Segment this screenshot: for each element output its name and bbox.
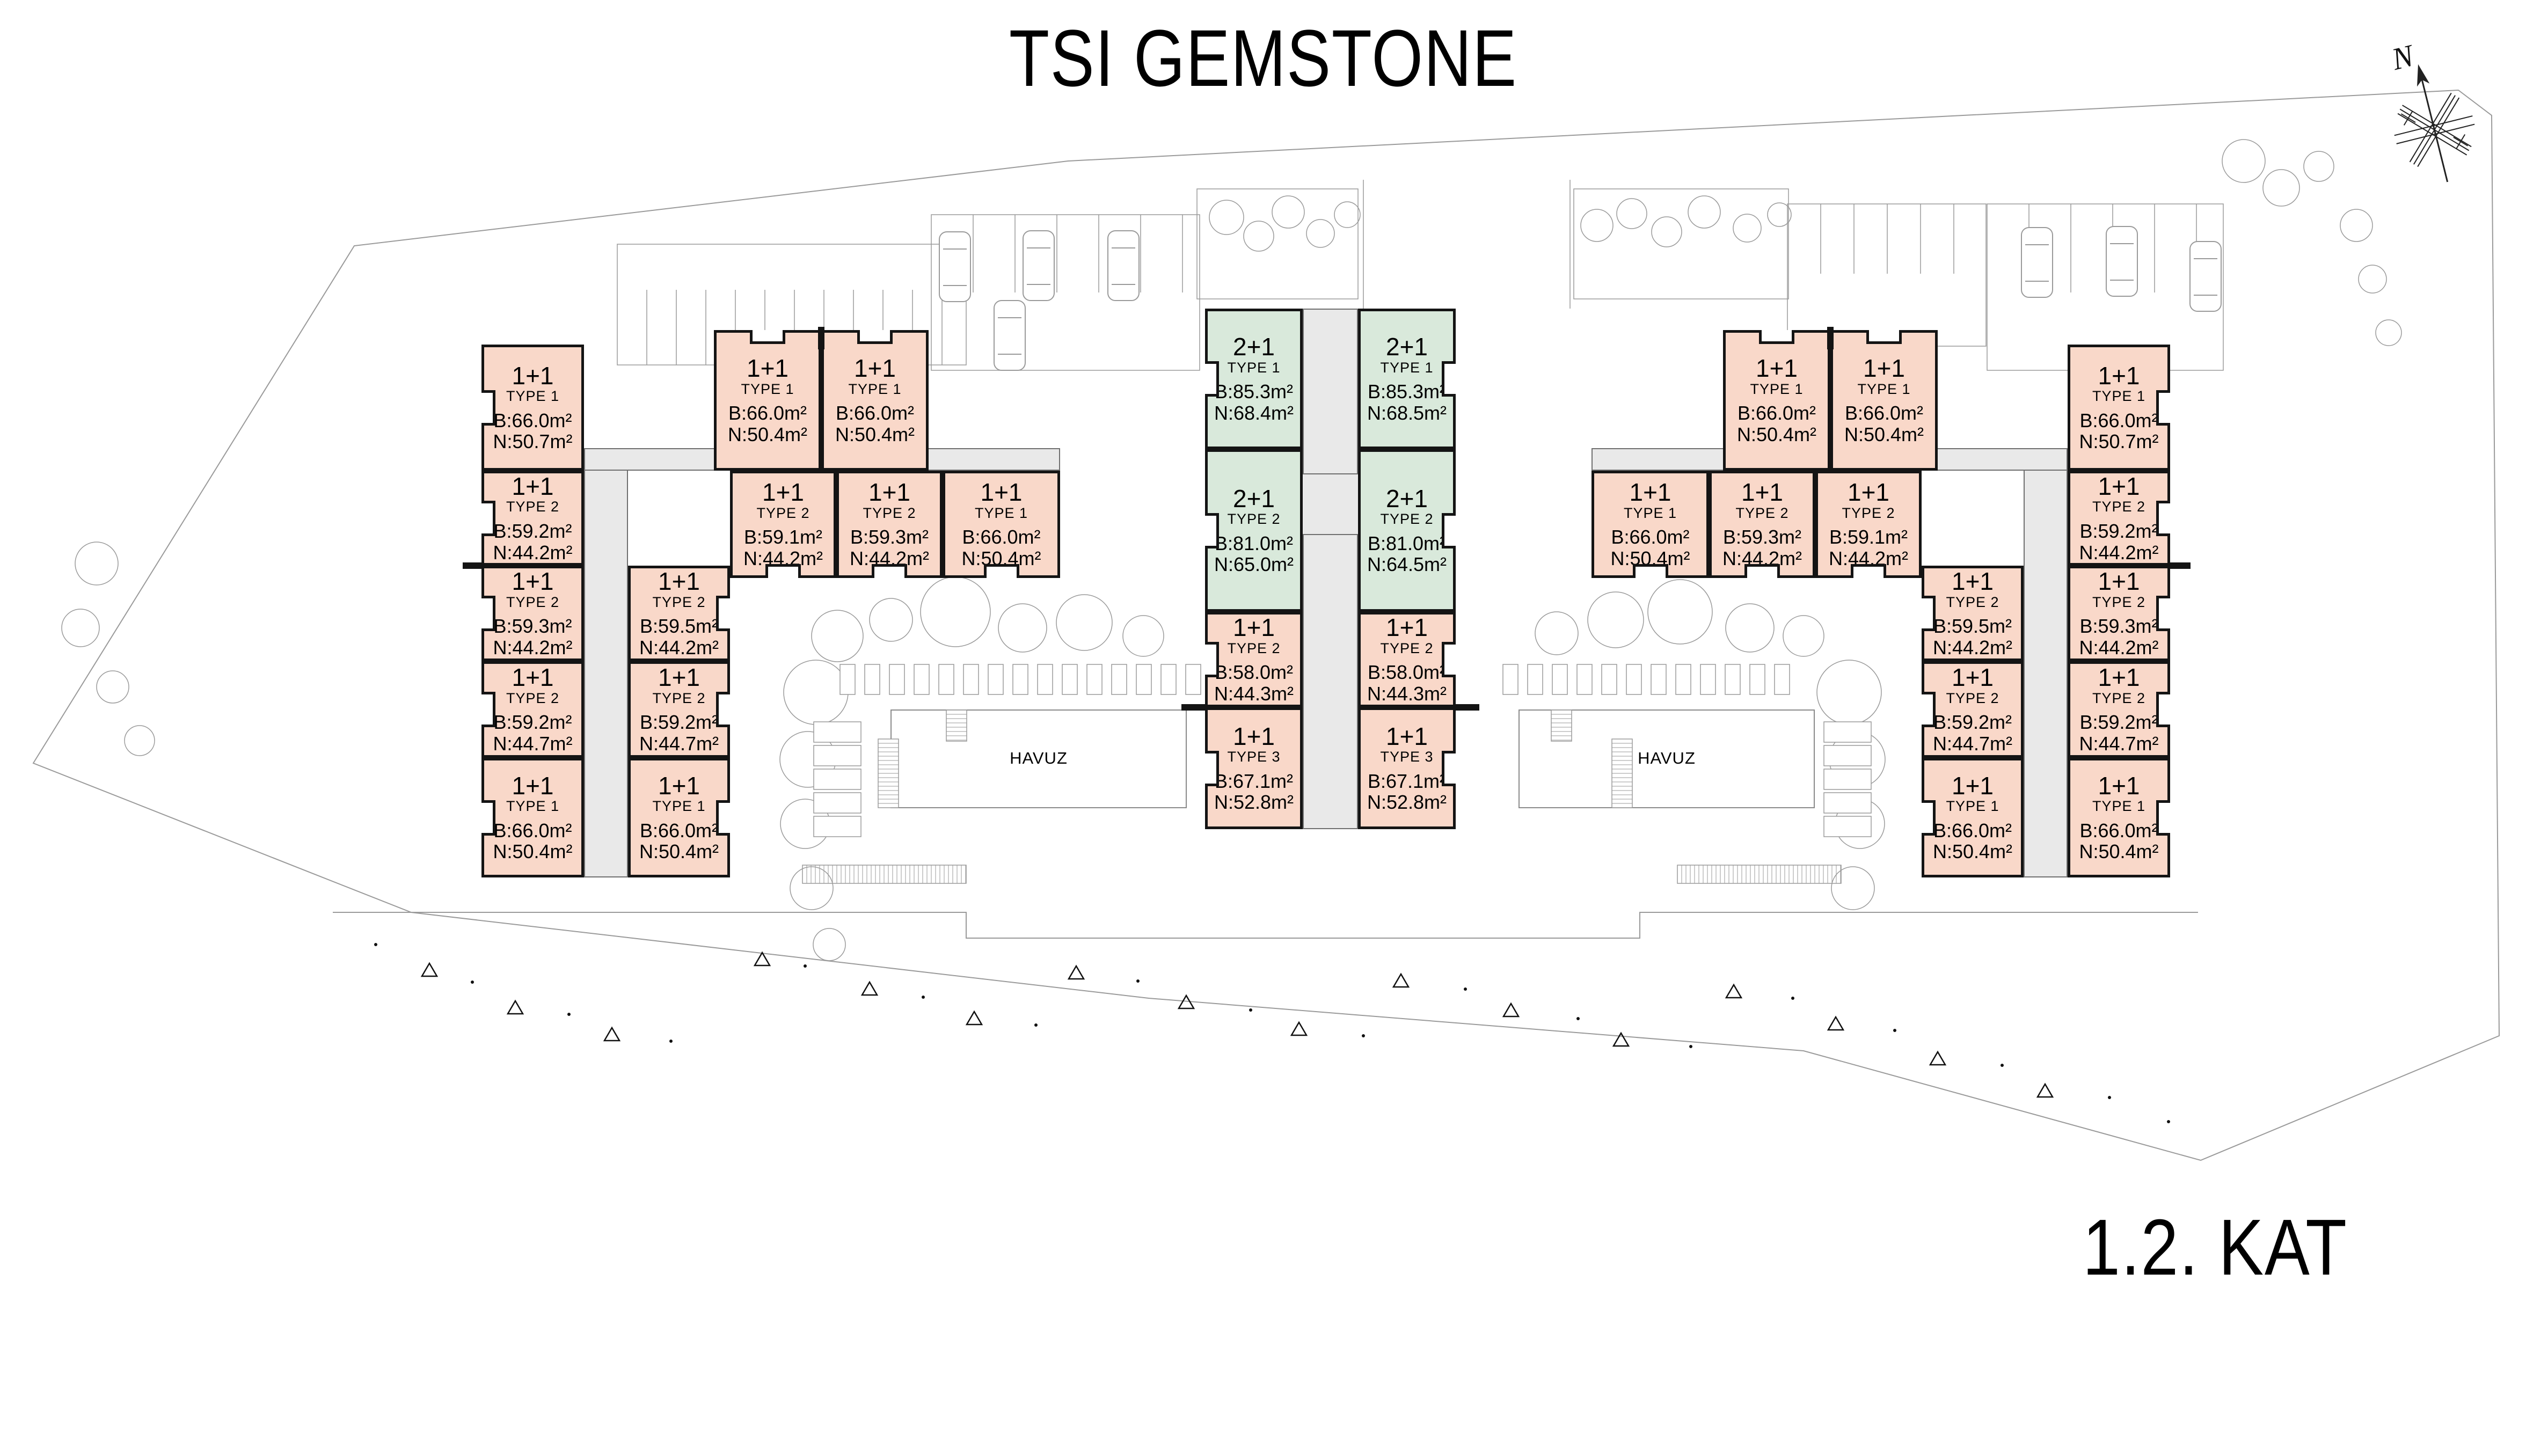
ground-dot (1136, 979, 1140, 983)
unit-plan-type: TYPE 1 (1857, 382, 1910, 398)
unit-net-area: N:44.7m² (493, 733, 572, 755)
apartment-unit[interactable]: 1+1TYPE 1B:66.0m²N:50.4m² (714, 330, 821, 471)
wall-stub (1181, 704, 1206, 711)
tree-icon (1209, 200, 1244, 235)
apartment-unit[interactable]: 1+1TYPE 2B:59.3m²N:44.2m² (481, 566, 584, 661)
unit-type-label: 1+1 (747, 355, 789, 381)
unit-net-area: N:44.3m² (1214, 683, 1294, 705)
tree-icon (1588, 592, 1644, 648)
unit-brut-area: B:59.2m² (2079, 521, 2158, 542)
unit-notch (1442, 751, 1456, 786)
unit-notch (1442, 361, 1456, 397)
pergola-bench (1677, 865, 1841, 883)
unit-brut-area: B:66.0m² (493, 820, 572, 842)
wall-stub (2170, 562, 2191, 569)
walkway-path (333, 912, 2198, 938)
apartment-unit[interactable]: 1+1TYPE 2B:59.2m²N:44.2m² (481, 471, 584, 566)
ground-dot (1034, 1023, 1038, 1027)
unit-type-label: 2+1 (1386, 486, 1428, 511)
unit-plan-type: TYPE 2 (1227, 641, 1280, 657)
unit-plan-type: TYPE 2 (1842, 506, 1895, 522)
car-icon (1023, 231, 1054, 301)
tree-icon (2222, 140, 2265, 182)
unit-type-label: 2+1 (1386, 334, 1428, 360)
apartment-unit[interactable]: 1+1TYPE 1B:66.0m²N:50.4m² (1830, 330, 1938, 471)
unit-brut-area: B:66.0m² (1845, 403, 1923, 424)
apartment-unit[interactable]: 1+1TYPE 2B:59.1m²N:44.2m² (1815, 471, 1922, 578)
unit-type-label: 1+1 (512, 473, 553, 499)
unit-type-label: 1+1 (1863, 355, 1905, 381)
unit-plan-type: TYPE 1 (1946, 799, 1999, 815)
pool-label: HAVUZ (1638, 749, 1696, 768)
unit-brut-area: B:85.3m² (1215, 381, 1293, 403)
plant-mark (1393, 974, 1408, 987)
unit-plan-type: TYPE 2 (2092, 691, 2145, 707)
car-icon (2106, 226, 2137, 296)
unit-brut-area: B:67.1m² (1215, 771, 1293, 792)
apartment-unit[interactable]: 1+1TYPE 1B:66.0m²N:50.4m² (821, 330, 929, 471)
unit-type-label: 2+1 (1233, 334, 1275, 360)
unit-notch (716, 596, 730, 631)
unit-plan-type: TYPE 2 (1227, 511, 1280, 528)
plant-mark (1828, 1017, 1843, 1030)
tree-icon (1581, 209, 1613, 242)
ground-dot (922, 996, 925, 999)
apartment-unit[interactable]: 1+1TYPE 2B:59.3m²N:44.2m² (2068, 566, 2170, 661)
unit-type-label: 1+1 (2098, 568, 2140, 594)
apartment-unit[interactable]: 1+1TYPE 1B:66.0m²N:50.7m² (2068, 345, 2170, 471)
unit-notch (1744, 564, 1780, 578)
unit-net-area: N:44.7m² (639, 733, 719, 755)
ground-dot (1576, 1017, 1580, 1020)
lounge-chair-icon (1824, 793, 1871, 813)
tree-icon (62, 609, 99, 647)
unit-net-area: N:64.5m² (1367, 554, 1447, 575)
corridor (1303, 309, 1358, 829)
sunbed-icon (939, 664, 954, 694)
apartment-unit[interactable]: 1+1TYPE 2B:59.2m²N:44.7m² (628, 661, 730, 758)
plant-mark (1726, 985, 1741, 998)
lounge-chair-icon (814, 793, 861, 813)
plant-mark (1069, 966, 1084, 979)
unit-notch (1205, 642, 1219, 677)
unit-plan-type: TYPE 1 (506, 389, 559, 405)
apartment-unit[interactable]: 2+1TYPE 1B:85.3m²N:68.5m² (1358, 309, 1456, 449)
unit-type-label: 1+1 (658, 568, 700, 594)
ground-dot (804, 964, 807, 968)
unit-type-label: 1+1 (1848, 479, 1889, 505)
unit-net-area: N:52.8m² (1367, 792, 1447, 813)
tree-icon (75, 542, 118, 585)
sunbed-icon (1602, 664, 1617, 694)
tree-icon (97, 671, 129, 703)
tree-icon (1648, 580, 1712, 644)
plant-mark (1291, 1022, 1306, 1035)
unit-brut-area: B:59.5m² (1933, 616, 2012, 637)
unit-net-area: N:50.4m² (835, 424, 915, 445)
apartment-unit[interactable]: 1+1TYPE 2B:59.2m²N:44.7m² (481, 661, 584, 758)
unit-plan-type: TYPE 2 (1946, 595, 1999, 611)
tree-icon (1831, 867, 1874, 910)
plant-mark (1614, 1033, 1629, 1046)
tree-icon (1306, 220, 1334, 247)
unit-brut-area: B:59.2m² (2079, 712, 2158, 733)
unit-plan-type: TYPE 1 (1380, 360, 1433, 376)
apartment-unit[interactable]: 1+1TYPE 1B:66.0m²N:50.4m² (1723, 330, 1830, 471)
unit-net-area: N:50.4m² (728, 424, 807, 445)
apartment-unit[interactable]: 1+1TYPE 2B:59.1m²N:44.2m² (730, 471, 836, 578)
apartment-unit[interactable]: 2+1TYPE 1B:85.3m²N:68.4m² (1205, 309, 1303, 449)
tree-icon (1244, 221, 1274, 251)
unit-brut-area: B:59.3m² (2079, 616, 2158, 637)
sunbed-icon (1528, 664, 1543, 694)
wall-stub (1827, 327, 1834, 349)
ground-dot (471, 981, 474, 984)
unit-net-area: N:44.3m² (1367, 683, 1447, 705)
apartment-unit[interactable]: 1+1TYPE 1B:66.0m²N:50.4m² (1591, 471, 1709, 578)
unit-brut-area: B:66.0m² (2079, 410, 2158, 431)
tree-icon (1817, 660, 1881, 725)
unit-notch (1633, 564, 1668, 578)
tree-icon (1617, 199, 1647, 229)
unit-brut-area: B:66.0m² (1933, 820, 2012, 842)
apartment-unit[interactable]: 1+1TYPE 3B:67.1m²N:52.8m² (1205, 707, 1303, 829)
sunbed-icon (988, 664, 1003, 694)
lounge-chair-icon (1824, 722, 1871, 742)
plant-mark (862, 982, 877, 995)
unit-type-label: 1+1 (512, 773, 553, 799)
sunbed-icon (889, 664, 904, 694)
unit-notch (1205, 751, 1219, 786)
lounge-chair-icon (1824, 769, 1871, 789)
unit-net-area: N:44.2m² (2079, 637, 2158, 659)
unit-notch (481, 501, 495, 536)
pergola-bench (802, 865, 966, 883)
apartment-unit[interactable]: 2+1TYPE 2B:81.0m²N:65.0m² (1205, 449, 1303, 612)
unit-net-area: N:44.2m² (2079, 542, 2158, 564)
unit-net-area: N:50.4m² (493, 841, 572, 862)
unit-notch (1442, 513, 1456, 548)
wall-stub (818, 327, 824, 349)
tree-icon (812, 610, 863, 662)
tree-icon (790, 867, 833, 910)
unit-brut-area: B:59.2m² (1933, 712, 2012, 733)
unit-plan-type: TYPE 2 (1380, 641, 1433, 657)
apartment-unit[interactable]: 1+1TYPE 2B:59.3m²N:44.2m² (1709, 471, 1815, 578)
plant-mark (755, 953, 770, 965)
unit-notch (750, 330, 785, 344)
tree-icon (1334, 202, 1360, 228)
unit-type-label: 1+1 (868, 479, 910, 505)
unit-plan-type: TYPE 1 (975, 506, 1028, 522)
unit-net-area: N:44.2m² (1933, 637, 2012, 659)
unit-net-area: N:68.5m² (1367, 403, 1447, 424)
unit-type-label: 1+1 (658, 664, 700, 690)
unit-brut-area: B:59.3m² (1723, 526, 1801, 548)
unit-type-label: 1+1 (512, 664, 553, 690)
floor-plan-canvas: TSI GEMSTONE 1.2. KAT N HAVUZHAVUZ1+1TYP… (0, 0, 2526, 1456)
unit-type-label: 1+1 (1233, 723, 1275, 749)
tree-icon (870, 598, 912, 641)
plant-mark (1930, 1052, 1945, 1065)
unit-type-label: 1+1 (1952, 664, 1994, 690)
lounge-chair-icon (1824, 745, 1871, 766)
sunbed-icon (1725, 664, 1740, 694)
unit-brut-area: B:81.0m² (1215, 533, 1293, 554)
ground-dot (1249, 1008, 1252, 1012)
ground-dot (2167, 1120, 2170, 1123)
unit-type-label: 1+1 (1386, 614, 1428, 640)
unit-type-label: 1+1 (980, 479, 1022, 505)
wall-stub (463, 562, 483, 569)
apartment-unit[interactable]: 1+1TYPE 3B:67.1m²N:52.8m² (1358, 707, 1456, 829)
sunbed-icon (1186, 664, 1201, 694)
apartment-unit[interactable]: 1+1TYPE 2B:59.5m²N:44.2m² (628, 566, 730, 661)
unit-net-area: N:52.8m² (1214, 792, 1294, 813)
apartment-unit[interactable]: 1+1TYPE 1B:66.0m²N:50.4m² (628, 758, 730, 877)
ground-dot (2108, 1096, 2111, 1099)
compass-n-label: N (2388, 38, 2418, 77)
unit-net-area: N:68.4m² (1214, 403, 1294, 424)
unit-brut-area: B:66.0m² (1611, 526, 1689, 548)
unit-notch (857, 330, 893, 344)
apartment-unit[interactable]: 1+1TYPE 1B:66.0m²N:50.4m² (481, 758, 584, 877)
unit-type-label: 1+1 (1233, 614, 1275, 640)
unit-type-label: 1+1 (1756, 355, 1798, 381)
unit-brut-area: B:58.0m² (1215, 662, 1293, 683)
unit-notch (1205, 513, 1219, 548)
apartment-unit[interactable]: 1+1TYPE 2B:59.2m²N:44.7m² (1922, 661, 2024, 758)
tree-icon (2304, 151, 2334, 181)
unit-net-area: N:44.2m² (493, 542, 572, 564)
unit-notch (481, 692, 495, 727)
apartment-unit[interactable]: 1+1TYPE 2B:59.2m²N:44.7m² (2068, 661, 2170, 758)
sunbed-icon (1112, 664, 1127, 694)
unit-plan-type: TYPE 2 (756, 506, 809, 522)
unit-plan-type: TYPE 2 (2092, 595, 2145, 611)
unit-brut-area: B:66.0m² (493, 410, 572, 431)
unit-net-area: N:44.2m² (493, 637, 572, 659)
plant-mark (422, 963, 437, 976)
plant-mark (1503, 1004, 1518, 1016)
unit-type-label: 1+1 (2098, 773, 2140, 799)
unit-type-label: 1+1 (512, 363, 553, 389)
ground-dot (1464, 987, 1467, 991)
unit-plan-type: TYPE 1 (1227, 360, 1280, 376)
wall-stub (1455, 704, 1479, 711)
unit-plan-type: TYPE 2 (652, 595, 705, 611)
unit-brut-area: B:66.0m² (2079, 820, 2158, 842)
unit-type-label: 1+1 (512, 568, 553, 594)
unit-plan-type: TYPE 1 (848, 382, 901, 398)
unit-notch (2156, 596, 2170, 631)
sunbed-icon (1013, 664, 1028, 694)
unit-notch (481, 596, 495, 631)
unit-brut-area: B:67.1m² (1368, 771, 1446, 792)
unit-plan-type: TYPE 2 (506, 595, 559, 611)
tree-icon (1535, 612, 1578, 655)
car-icon (1108, 231, 1139, 301)
unit-net-area: N:44.7m² (2079, 733, 2158, 755)
unit-brut-area: B:59.5m² (640, 616, 718, 637)
unit-notch (716, 692, 730, 727)
unit-notch (2156, 501, 2170, 536)
planter-box (1197, 189, 1358, 299)
sunbed-icon (1577, 664, 1592, 694)
pool-label: HAVUZ (1010, 749, 1068, 768)
lounge-chair-icon (1824, 816, 1871, 837)
unit-brut-area: B:59.2m² (493, 712, 572, 733)
sunbed-icon (840, 664, 855, 694)
parking-area (1787, 204, 1986, 346)
unit-notch (1866, 330, 1902, 344)
unit-type-label: 1+1 (762, 479, 804, 505)
tree-icon (2359, 265, 2386, 293)
unit-notch (481, 800, 495, 836)
unit-brut-area: B:66.0m² (836, 403, 914, 424)
unit-net-area: N:44.7m² (1933, 733, 2012, 755)
unit-notch (2156, 800, 2170, 836)
sunbed-icon (865, 664, 880, 694)
unit-plan-type: TYPE 1 (1624, 506, 1677, 522)
unit-plan-type: TYPE 1 (506, 799, 559, 815)
unit-type-label: 1+1 (2098, 664, 2140, 690)
unit-plan-type: TYPE 2 (1735, 506, 1788, 522)
unit-net-area: N:50.4m² (1933, 841, 2012, 862)
unit-brut-area: B:59.3m² (493, 616, 572, 637)
unit-plan-type: TYPE 2 (2092, 499, 2145, 515)
corridor (2024, 448, 2068, 877)
sunbed-icon (1062, 664, 1077, 694)
unit-notch (1759, 330, 1794, 344)
tree-icon (1056, 595, 1112, 650)
unit-type-label: 1+1 (1629, 479, 1671, 505)
sunbed-icon (1750, 664, 1765, 694)
corridor (584, 448, 628, 877)
sunbed-icon (1136, 664, 1151, 694)
unit-type-label: 1+1 (1741, 479, 1783, 505)
unit-type-label: 1+1 (2098, 363, 2140, 389)
unit-brut-area: B:59.3m² (850, 526, 929, 548)
plant-mark (967, 1012, 982, 1025)
ground-dot (1362, 1034, 1365, 1037)
unit-plan-type: TYPE 2 (863, 506, 916, 522)
unit-net-area: N:50.7m² (493, 431, 572, 452)
unit-brut-area: B:66.0m² (640, 820, 718, 842)
unit-net-area: N:50.4m² (1844, 424, 1924, 445)
unit-net-area: N:65.0m² (1214, 554, 1294, 575)
unit-brut-area: B:66.0m² (728, 403, 807, 424)
unit-plan-type: TYPE 1 (741, 382, 794, 398)
sunbed-icon (1626, 664, 1641, 694)
unit-notch (1922, 692, 1936, 727)
unit-brut-area: B:59.1m² (744, 526, 822, 548)
apartment-unit[interactable]: 1+1TYPE 2B:59.3m²N:44.2m² (836, 471, 943, 578)
apartment-unit[interactable]: 1+1TYPE 1B:66.0m²N:50.7m² (481, 345, 584, 471)
unit-brut-area: B:66.0m² (1737, 403, 1816, 424)
apartment-unit[interactable]: 1+1TYPE 2B:59.2m²N:44.2m² (2068, 471, 2170, 566)
tree-icon (1726, 604, 1774, 652)
unit-brut-area: B:59.2m² (640, 712, 718, 733)
sunbed-icon (1651, 664, 1666, 694)
planter-box (1574, 189, 1788, 299)
unit-notch (872, 564, 907, 578)
apartment-unit[interactable]: 1+1TYPE 1B:66.0m²N:50.4m² (2068, 758, 2170, 877)
unit-plan-type: TYPE 1 (2092, 389, 2145, 405)
unit-brut-area: B:85.3m² (1368, 381, 1446, 403)
lounge-chair-icon (814, 816, 861, 837)
apartment-unit[interactable]: 1+1TYPE 2B:58.0m²N:44.3m² (1205, 612, 1303, 707)
lounge-chair-icon (814, 722, 861, 742)
apartment-unit[interactable]: 2+1TYPE 2B:81.0m²N:64.5m² (1358, 449, 1456, 612)
unit-net-area: N:50.7m² (2079, 431, 2158, 452)
plant-mark (2038, 1084, 2053, 1097)
floor-label: 1.2. KAT (2083, 1202, 2394, 1293)
unit-plan-type: TYPE 2 (506, 499, 559, 515)
unit-type-label: 2+1 (1233, 486, 1275, 511)
unit-notch (2156, 390, 2170, 426)
sunbed-icon (1775, 664, 1790, 694)
tree-icon (921, 577, 990, 647)
sunbed-icon (1676, 664, 1691, 694)
tree-icon (784, 660, 848, 725)
unit-brut-area: B:59.2m² (493, 521, 572, 542)
unit-notch (1922, 800, 1936, 836)
unit-plan-type: TYPE 1 (2092, 799, 2145, 815)
unit-notch (765, 564, 801, 578)
sunbed-icon (1038, 664, 1053, 694)
apartment-unit[interactable]: 1+1TYPE 1B:66.0m²N:50.4m² (1922, 758, 2024, 877)
unit-net-area: N:50.4m² (1737, 424, 1816, 445)
sunbed-icon (1700, 664, 1715, 694)
unit-plan-type: TYPE 1 (1750, 382, 1803, 398)
unit-notch (984, 564, 1019, 578)
tree-icon (1688, 196, 1720, 228)
ground-dot (2001, 1064, 2004, 1067)
tree-icon (2340, 209, 2372, 242)
unit-brut-area: B:58.0m² (1368, 662, 1446, 683)
ground-dot (1893, 1029, 1896, 1032)
sunbed-icon (1087, 664, 1102, 694)
page-title: TSI GEMSTONE (0, 12, 2526, 105)
unit-type-label: 1+1 (1386, 723, 1428, 749)
unit-plan-type: TYPE 2 (652, 691, 705, 707)
unit-net-area: N:50.4m² (639, 841, 719, 862)
unit-plan-type: TYPE 2 (1380, 511, 1433, 528)
unit-plan-type: TYPE 2 (1946, 691, 1999, 707)
sunbed-icon (1503, 664, 1518, 694)
apartment-unit[interactable]: 1+1TYPE 2B:59.5m²N:44.2m² (1922, 566, 2024, 661)
tree-icon (1783, 616, 1824, 656)
sunbed-icon (1161, 664, 1176, 694)
unit-notch (716, 800, 730, 836)
tree-icon (1652, 217, 1682, 247)
plant-mark (604, 1028, 619, 1041)
unit-notch (1851, 564, 1886, 578)
apartment-unit[interactable]: 1+1TYPE 2B:58.0m²N:44.3m² (1358, 612, 1456, 707)
unit-plan-type: TYPE 3 (1380, 749, 1433, 765)
tree-icon (998, 604, 1047, 652)
tree-icon (1272, 196, 1304, 228)
sunbed-icon (963, 664, 979, 694)
sunbed-icon (914, 664, 929, 694)
compass-north-icon: N (2372, 38, 2496, 193)
ground-dot (1791, 997, 1794, 1000)
lounge-chair-icon (814, 769, 861, 789)
apartment-unit[interactable]: 1+1TYPE 1B:66.0m²N:50.4m² (943, 471, 1060, 578)
unit-brut-area: B:81.0m² (1368, 533, 1446, 554)
sunbed-icon (1552, 664, 1567, 694)
